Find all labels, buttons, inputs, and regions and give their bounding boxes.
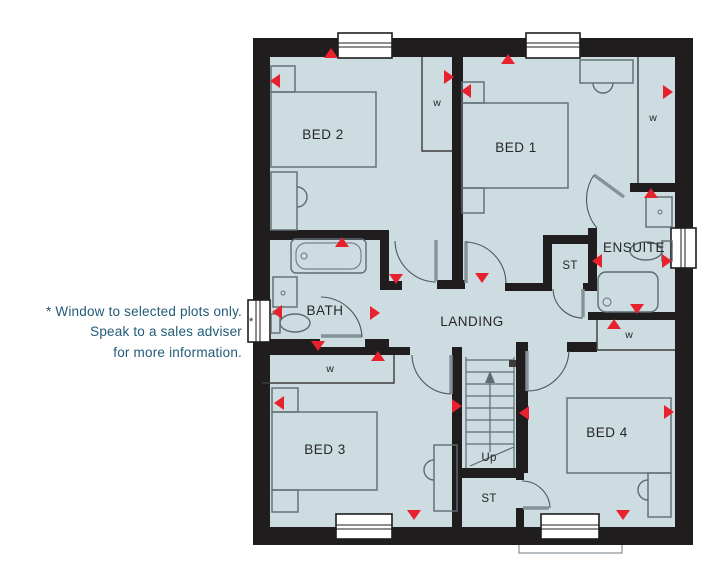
- wall-ensuite-south: [588, 312, 675, 320]
- wall-bath-south-east: [365, 339, 389, 348]
- window-bed3: [336, 514, 392, 539]
- wall-exterior-bottom: [253, 527, 693, 545]
- window-asterisk: *: [249, 316, 254, 328]
- wall-landing-top-west: [380, 281, 402, 290]
- bed1-label: BED 1: [495, 140, 537, 155]
- wall-exterior-right: [675, 38, 693, 545]
- wall-bed3-north: [262, 347, 410, 355]
- landing-label: LANDING: [440, 314, 504, 329]
- bath-label: BATH: [306, 303, 343, 318]
- st-upper-label: ST: [562, 260, 577, 272]
- bed4-wardrobe-label: w: [624, 329, 633, 341]
- stairs-up-label: Up: [481, 452, 496, 464]
- wall-st-lower-stub: [516, 470, 524, 480]
- bed3-label: BED 3: [304, 442, 346, 457]
- stair-newel-post: [509, 360, 516, 367]
- first-floor-plan: *: [0, 0, 727, 566]
- wall-exterior-top: [253, 38, 693, 57]
- wall-st-lower-east: [516, 508, 524, 527]
- wall-exterior-left: [253, 38, 270, 545]
- window-bed1: [526, 33, 580, 58]
- wall-bed4-north: [567, 342, 597, 352]
- wall-bed4-door-stub: [516, 342, 528, 352]
- window-bed2: [338, 33, 392, 58]
- floor-plan-page: * Window to selected plots only. Speak t…: [0, 0, 727, 566]
- bed2-label: BED 2: [302, 127, 344, 142]
- bed1-wardrobe-label: w: [648, 112, 657, 124]
- bed4-label: BED 4: [586, 425, 628, 440]
- window-ensuite: [671, 228, 696, 268]
- wall-stairs-bottom: [462, 468, 516, 478]
- ensuite-label: ENSUITE: [603, 240, 665, 255]
- wall-bath-east: [380, 230, 389, 288]
- wall-landing-door-stub: [437, 280, 465, 289]
- st-lower-label: ST: [481, 493, 496, 505]
- window-bed4: [541, 514, 599, 539]
- bed2-wardrobe-label: w: [432, 97, 441, 109]
- bed3-wardrobe-label: w: [325, 363, 334, 375]
